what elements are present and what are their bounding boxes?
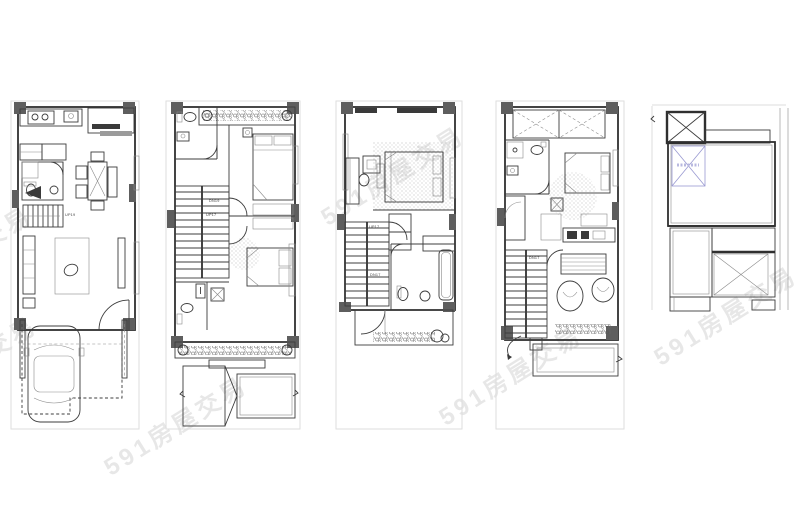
round-rug: [549, 172, 597, 220]
terrace-below: [530, 338, 622, 376]
site-boundary: [496, 101, 624, 429]
door-arc: [229, 198, 247, 216]
plants: [373, 332, 435, 342]
round-rug: [228, 238, 260, 270]
skylight-strip: [513, 110, 605, 138]
floor-plan-second: DN19 UP17: [163, 98, 305, 432]
stair-direction-label: UP17: [369, 225, 379, 229]
parking-outline: [22, 324, 122, 414]
chair: [359, 174, 369, 186]
balcony: [355, 310, 453, 345]
living-room: [23, 236, 125, 308]
bedroom: [549, 150, 618, 220]
stair-direction-label: UP19: [65, 213, 75, 217]
bedroom-upper: [229, 125, 298, 216]
dresser: [253, 218, 293, 229]
hip-roof-below: [180, 366, 298, 426]
door-arc: [389, 222, 407, 240]
closet: [505, 196, 525, 240]
rug: [55, 238, 89, 294]
stair-direction-label: DN19: [209, 199, 220, 203]
stair-direction-label: DN17: [529, 256, 540, 260]
break-mark: [293, 390, 298, 396]
skylight-hatch-box: [667, 112, 705, 143]
floor-plan-roof: [646, 98, 796, 328]
carport: [20, 320, 127, 422]
sideboard: [108, 167, 117, 197]
roof-tabs: [670, 297, 775, 311]
car: [24, 326, 84, 422]
wardrobes: [389, 214, 455, 251]
toilet: [398, 288, 408, 301]
bedroom: [373, 142, 455, 210]
slat-table: [561, 254, 606, 274]
upper-roof-deck: [668, 142, 775, 226]
lower-roof-deck: [670, 228, 775, 297]
lounge: [555, 254, 614, 334]
tv-cabinet: [118, 238, 125, 288]
floorplan-sheet: 591房屋交易 591房屋交易 591房屋交易 591房屋交易 591房屋交易 …: [0, 0, 800, 532]
door-arc: [361, 310, 385, 334]
skylight-marked-area: [672, 146, 705, 186]
balcony-bottom: [175, 342, 295, 368]
floor-plan-third: UP17 DN17: [333, 98, 465, 432]
lounge-chair: [592, 278, 614, 302]
stair-direction-label: DN17: [370, 273, 381, 277]
kitchen: [20, 109, 82, 126]
floor-plan-fourth: DN17: [493, 98, 627, 432]
staircase: DN17: [505, 250, 563, 360]
door-arc: [51, 162, 63, 175]
bathroom-lower: [175, 282, 229, 330]
parapet-strip: [705, 130, 770, 143]
floor-plan-ground: UP19: [8, 98, 142, 432]
sofa: [23, 236, 35, 294]
hatched-roof-area: [714, 254, 768, 295]
sink: [420, 291, 430, 301]
break-mark: [616, 356, 622, 362]
break-mark: [180, 391, 185, 397]
planter-step: [209, 360, 265, 368]
stair-direction-label: UP17: [206, 213, 216, 217]
dining-area: [76, 152, 117, 210]
bathroom: [22, 162, 63, 200]
bathtub: [439, 250, 453, 300]
closet: [253, 204, 293, 215]
exterior-walls: [18, 107, 135, 330]
bathroom: [505, 140, 549, 194]
bathroom: [391, 244, 455, 310]
bed: [253, 134, 293, 200]
balcony-top: [199, 107, 295, 125]
structural-columns: [167, 102, 299, 348]
bedroom-lower: [228, 218, 295, 296]
cabinets: [20, 144, 66, 160]
lounge-chair: [557, 281, 583, 311]
neighbor-lines: [651, 105, 788, 310]
staircase: UP19: [23, 186, 75, 227]
plants: [555, 324, 611, 334]
